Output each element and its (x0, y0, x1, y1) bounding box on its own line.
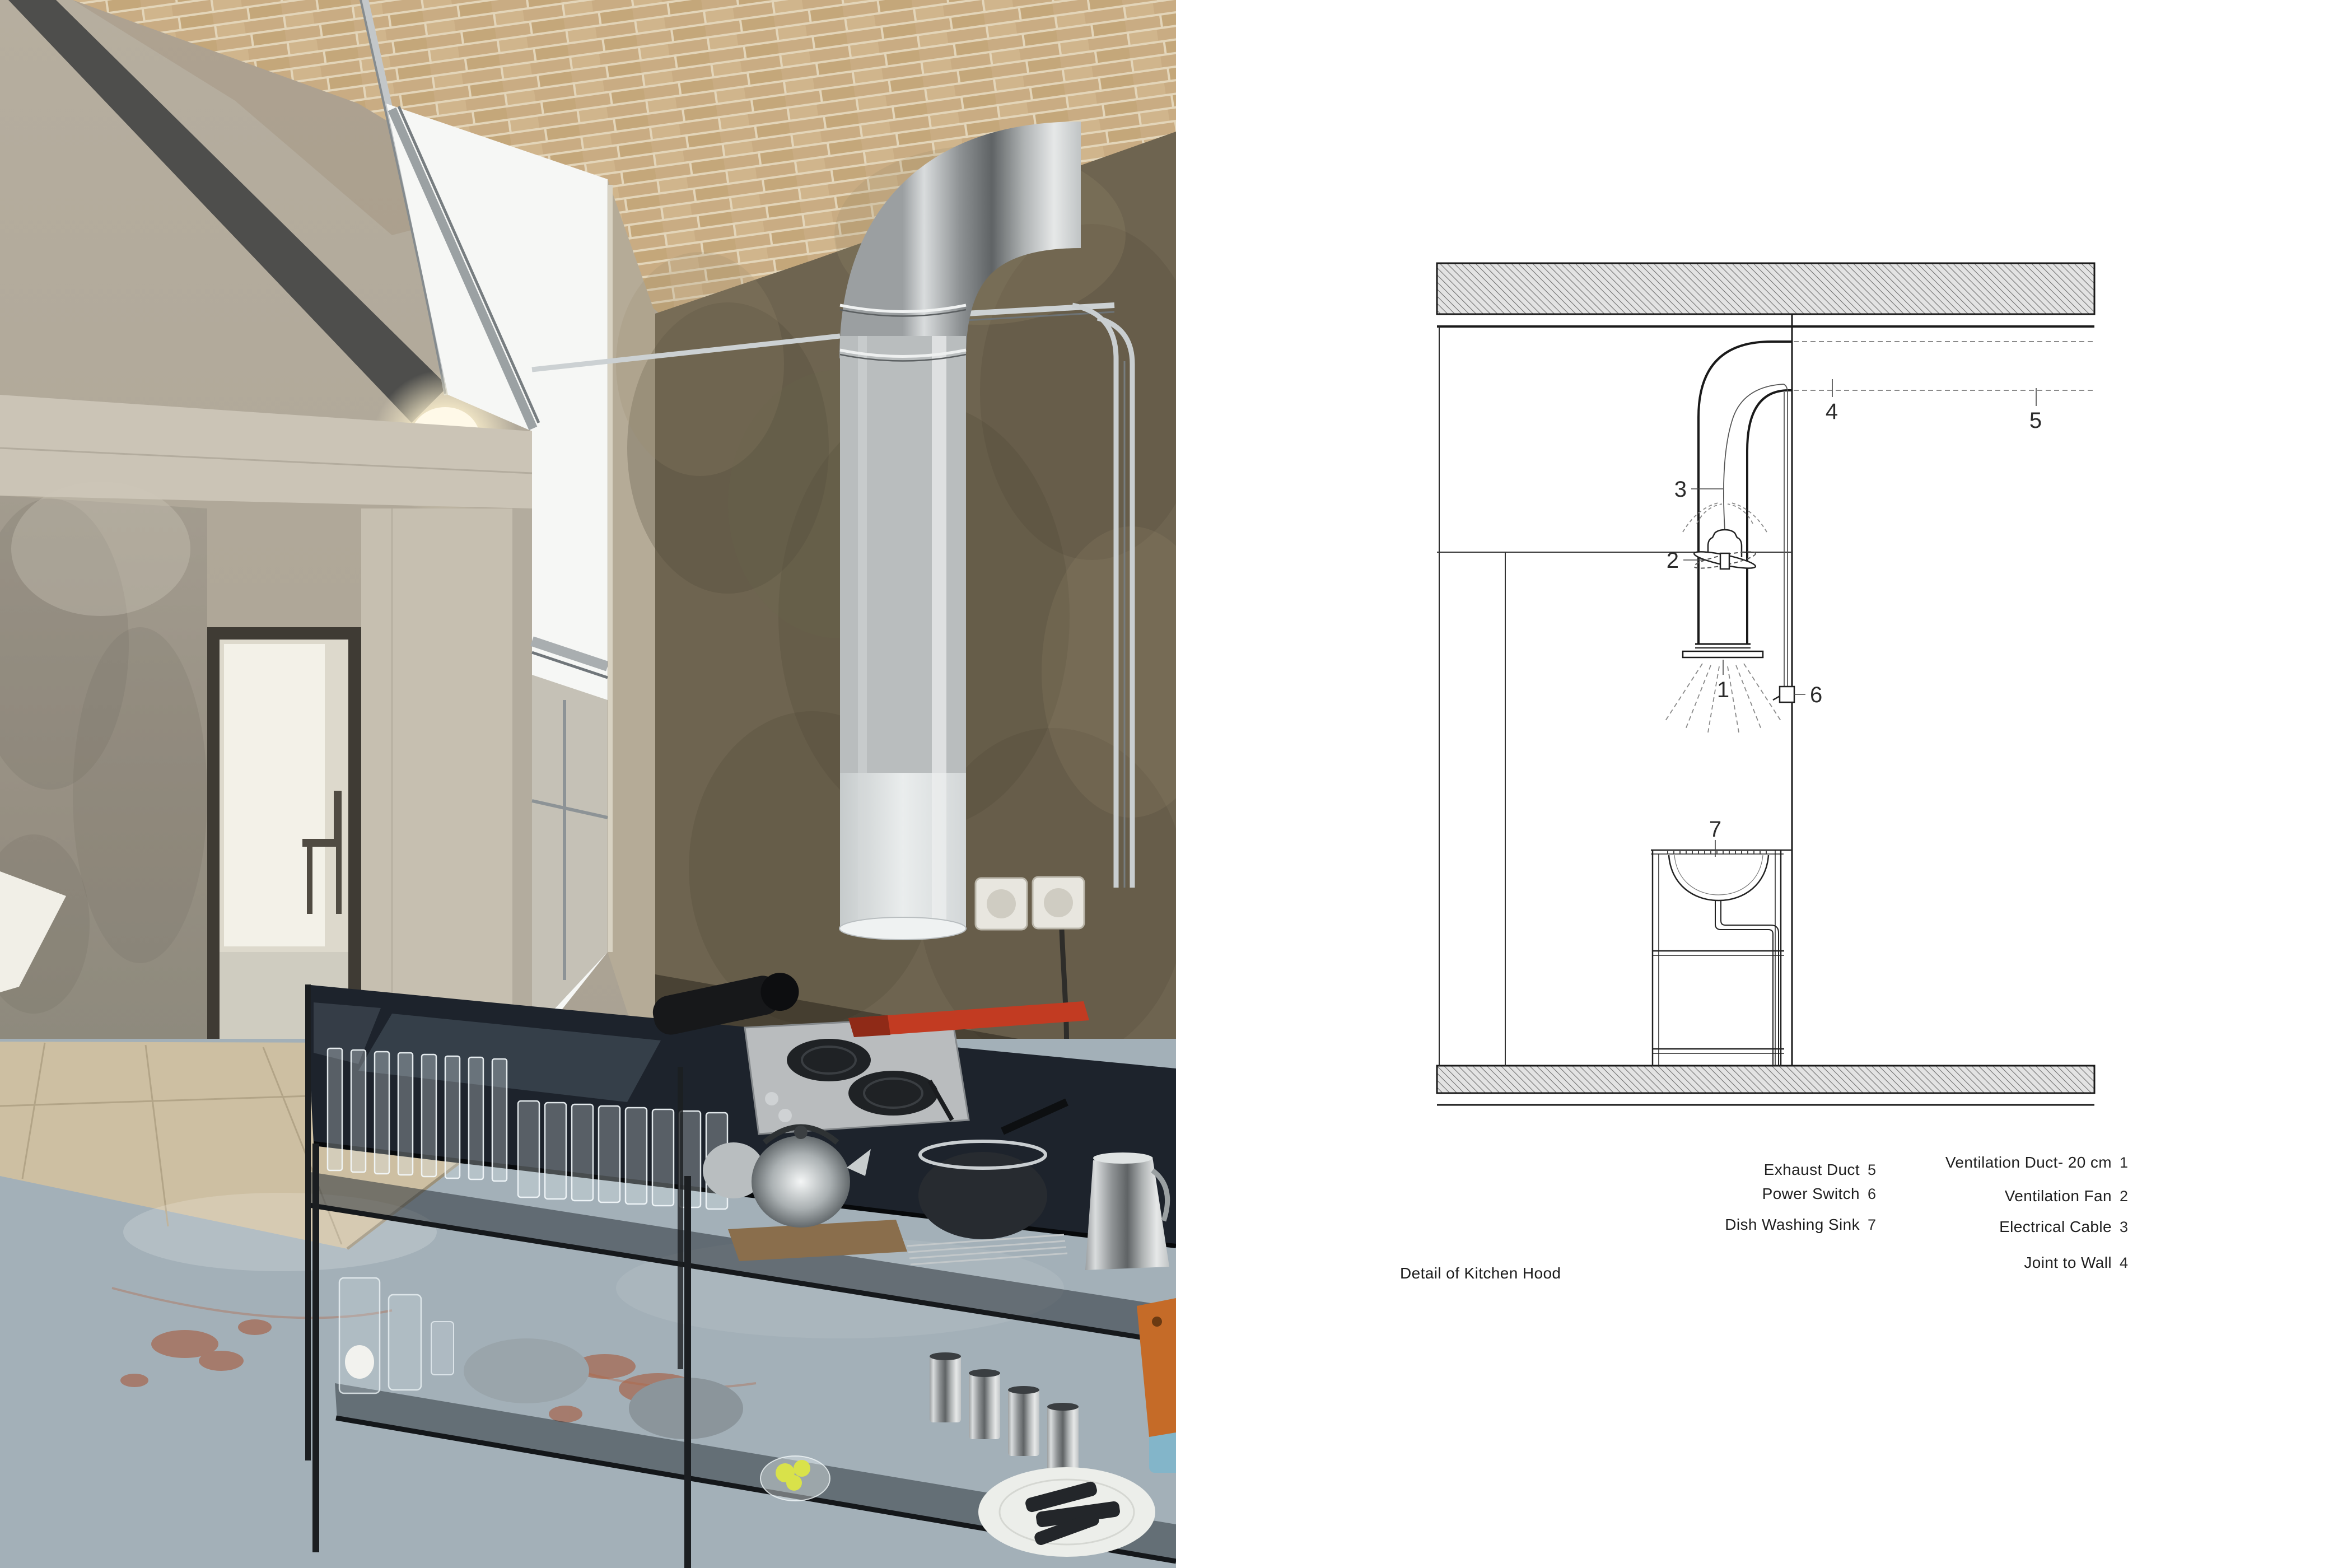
ceiling-slab (1437, 263, 2094, 326)
kitchen-hood-section: 1 2 3 4 5 6 7 (1176, 0, 2352, 1568)
callout-leaders (1683, 379, 2036, 857)
fan-shaft (1720, 553, 1729, 569)
callout-4: 4 (1826, 399, 1838, 424)
callout-7: 7 (1709, 817, 1721, 842)
plate-with-charcoal (978, 1467, 1155, 1557)
callout-5: 5 (2029, 408, 2042, 433)
portfolio-page: 1 2 3 4 5 6 7 Exhaust Duct 5 Power Switc… (0, 0, 2352, 1568)
drawing-title: Detail of Kitchen Hood (1400, 1264, 1561, 1282)
floor-slab (1437, 1066, 2094, 1105)
kitchen-photo-art (0, 0, 1176, 1568)
dish-washing-sink (1651, 850, 1792, 1066)
technical-drawing-page: 1 2 3 4 5 6 7 Exhaust Duct 5 Power Switc… (1176, 0, 2352, 1568)
exhaust-duct-outline (1698, 342, 1792, 644)
callout-1: 1 (1717, 678, 1729, 702)
callout-2: 2 (1667, 548, 1679, 573)
sink-bowl (1669, 855, 1768, 900)
concrete-pier (361, 508, 532, 1047)
grey-bowl (464, 1338, 589, 1403)
duct-continuation-dashed (1794, 342, 2094, 390)
power-switch (1773, 687, 1794, 702)
ventilation-fan (1683, 503, 1767, 571)
kitchen-photo (0, 0, 1176, 1568)
doorway (207, 627, 361, 1042)
callout-6: 6 (1810, 683, 1822, 707)
duct-bottom-rim (839, 917, 966, 940)
callout-3: 3 (1674, 477, 1687, 502)
burner (787, 1039, 871, 1081)
